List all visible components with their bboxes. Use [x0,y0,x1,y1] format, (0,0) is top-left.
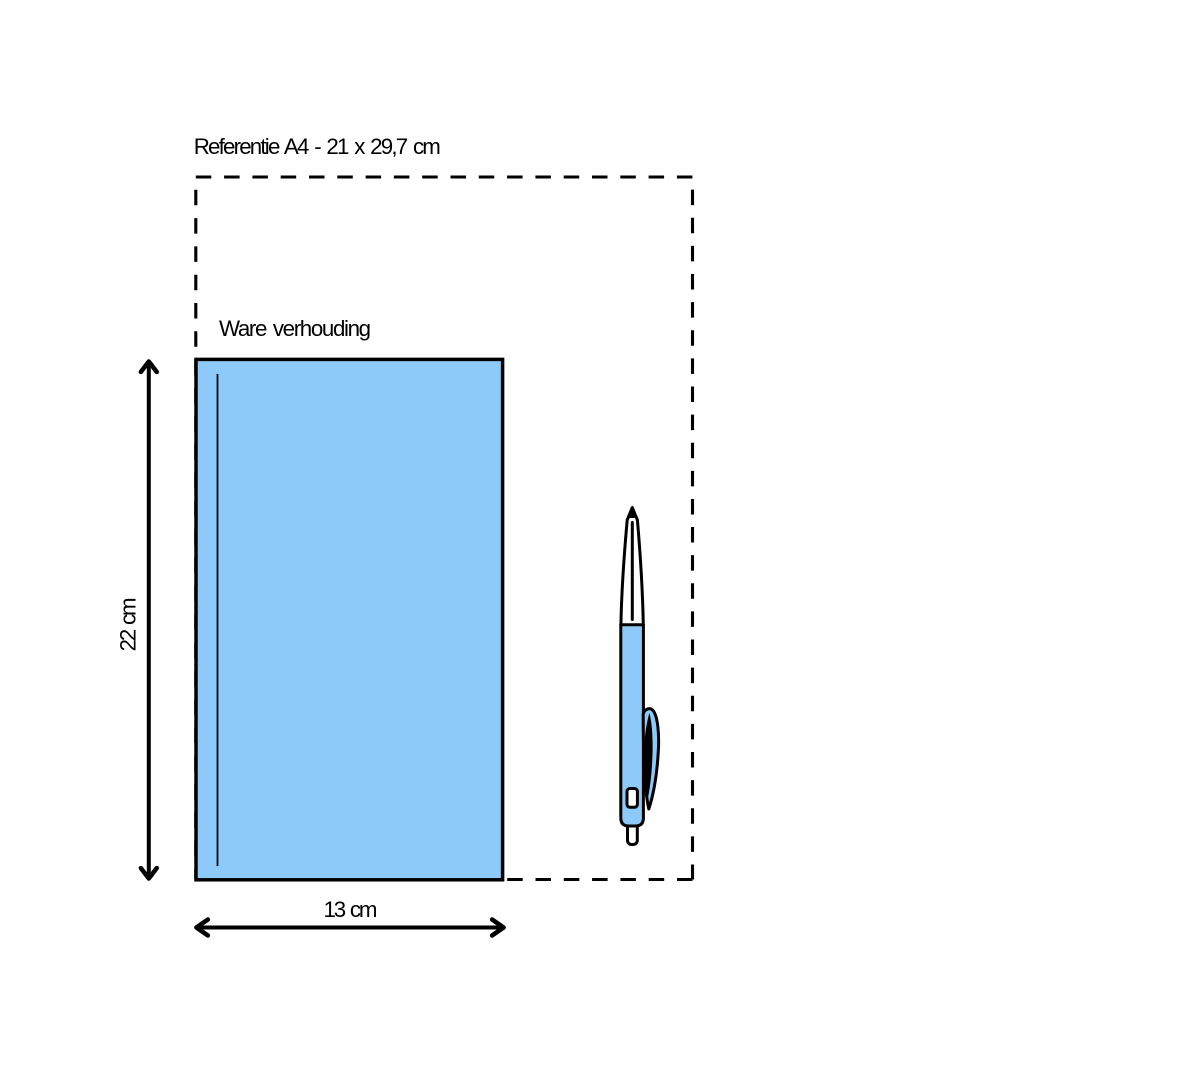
svg-text:22 cm: 22 cm [115,598,140,651]
svg-text:13 cm: 13 cm [324,897,377,922]
svg-text:Referentie A4 - 21 x 29,7 cm: Referentie A4 - 21 x 29,7 cm [194,134,441,159]
svg-text:Ware verhouding: Ware verhouding [219,316,370,341]
